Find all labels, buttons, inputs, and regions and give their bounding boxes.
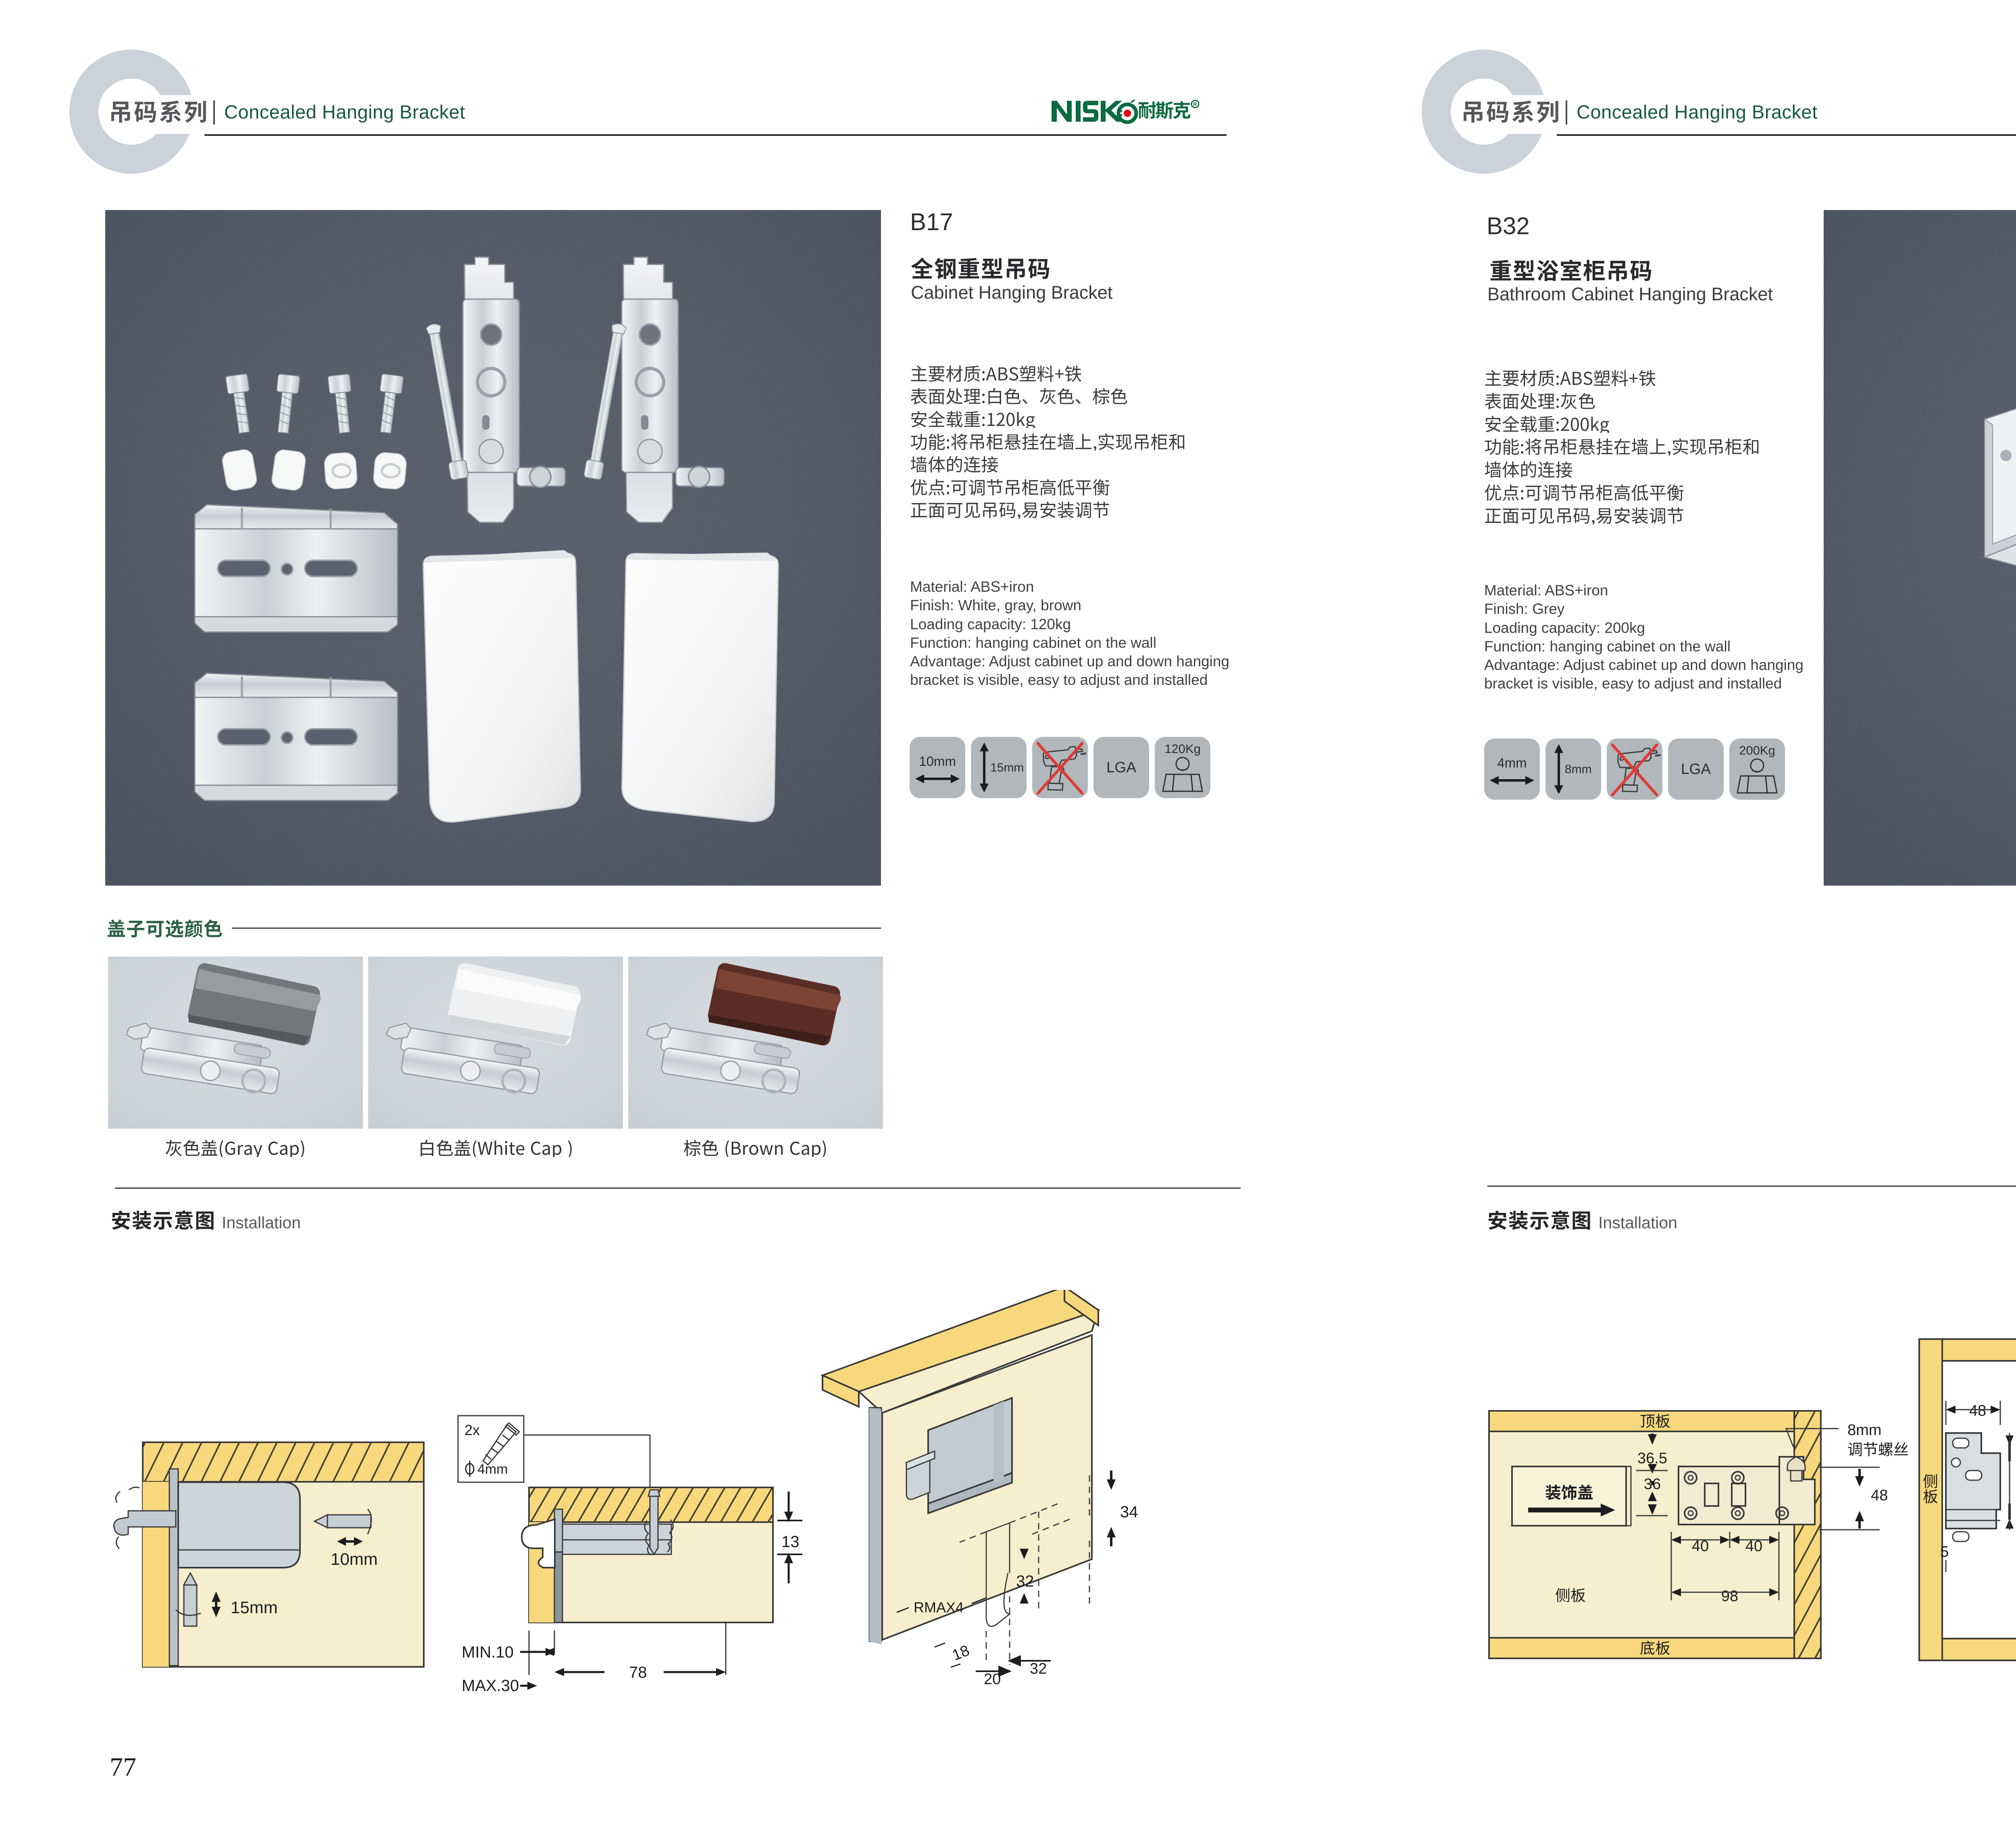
svg-text:4mm: 4mm: [1497, 755, 1527, 770]
svg-text:18: 18: [950, 1642, 972, 1664]
svg-text:13: 13: [781, 1533, 800, 1551]
svg-text:5: 5: [1940, 1543, 1949, 1560]
svg-text:15mm: 15mm: [990, 761, 1024, 774]
svg-text:200Kg: 200Kg: [1739, 743, 1775, 757]
svg-text:10mm: 10mm: [919, 754, 956, 769]
svg-text:8mm: 8mm: [1847, 1422, 1881, 1439]
svg-text:LGA: LGA: [1106, 759, 1136, 776]
svg-text:RMAX4: RMAX4: [914, 1599, 964, 1616]
svg-text:32: 32: [1030, 1660, 1047, 1677]
svg-text:48: 48: [1871, 1487, 1888, 1504]
svg-text:MIN.10: MIN.10: [462, 1643, 514, 1661]
svg-text:120Kg: 120Kg: [1164, 742, 1201, 756]
svg-text:2x: 2x: [464, 1422, 480, 1438]
svg-text:20: 20: [984, 1671, 1001, 1688]
svg-text:4mm: 4mm: [477, 1462, 508, 1477]
svg-text:10mm: 10mm: [331, 1550, 378, 1568]
svg-text:8mm: 8mm: [1565, 763, 1592, 776]
svg-text:32: 32: [1016, 1572, 1034, 1590]
svg-text:R: R: [1193, 101, 1197, 107]
svg-text:MAX.30: MAX.30: [462, 1677, 519, 1693]
svg-text:15mm: 15mm: [231, 1598, 278, 1617]
svg-text:98: 98: [1721, 1588, 1738, 1605]
svg-text:34: 34: [1120, 1503, 1138, 1521]
svg-text:LGA: LGA: [1681, 761, 1711, 777]
svg-text:78: 78: [629, 1664, 647, 1681]
svg-text:48: 48: [1969, 1402, 1986, 1419]
